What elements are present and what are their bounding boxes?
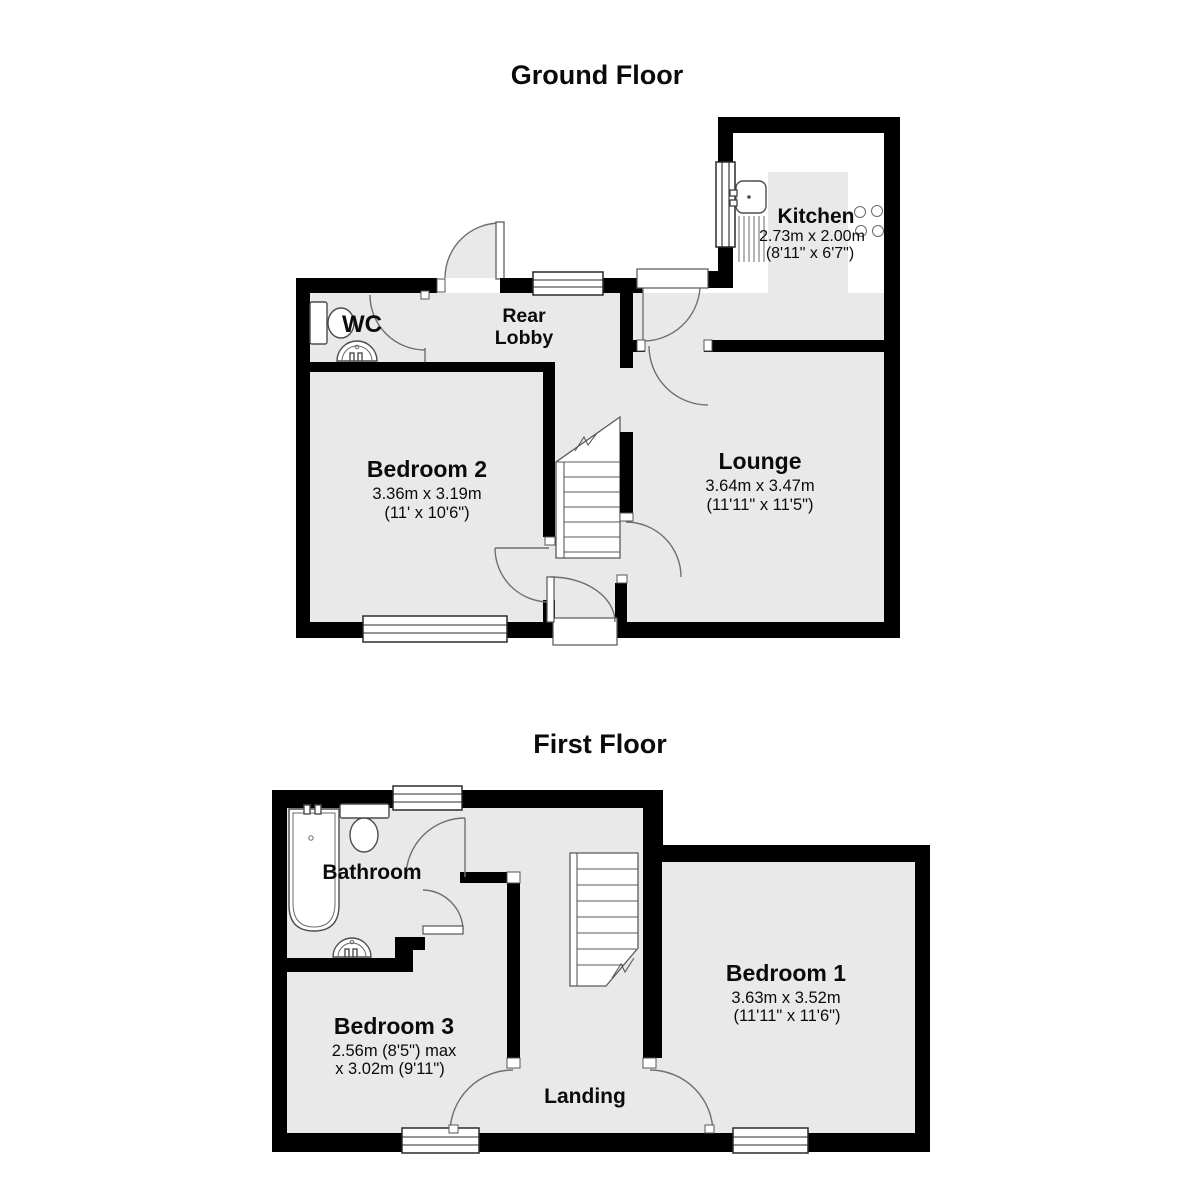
floorplan-svg: Ground Floor — [0, 0, 1200, 1200]
wall-top-b — [500, 278, 533, 293]
bedroom1-window — [733, 1128, 808, 1153]
wall-bathroom-bottom — [287, 958, 403, 972]
wall-stairs-lounge — [620, 432, 633, 513]
bedroom1-dim-metric: 3.63m x 3.52m — [731, 989, 840, 1007]
wall-ff-right — [915, 845, 930, 1152]
lobby-window — [533, 272, 603, 295]
ground-floor-title: Ground Floor — [511, 60, 684, 90]
bedroom1-name: Bedroom 1 — [726, 960, 846, 986]
wall-bottom-a — [296, 622, 363, 638]
jamb — [620, 513, 633, 521]
jamb — [705, 1125, 714, 1133]
back-door-swing-area — [445, 223, 500, 278]
kitchen-name: Kitchen — [777, 205, 854, 228]
bedroom1-dim-imperial: (11'11" x 11'6") — [734, 1007, 841, 1025]
kitchen-dim-metric: 2.73m x 2.00m — [759, 228, 865, 245]
wall-lobby-lounge — [620, 293, 633, 368]
jamb — [449, 1125, 458, 1133]
wall-corridor — [507, 883, 520, 1058]
wall-right — [884, 117, 900, 638]
wall-kitchen-top — [718, 117, 900, 133]
jamb — [507, 1058, 520, 1068]
front-door-leaf — [547, 577, 554, 622]
wall-kitchen-left-lower — [718, 246, 733, 273]
back-door-leaf — [496, 222, 504, 279]
bedroom3-door-leaf — [423, 926, 463, 934]
wall-corridor-stub — [460, 872, 507, 883]
bedroom2-dim-metric: 3.36m x 3.19m — [372, 485, 481, 503]
wall-ff-left — [272, 790, 287, 1152]
wall-bottom-b — [507, 622, 553, 638]
kitchen-doorway-threshold — [637, 269, 708, 288]
jamb — [421, 291, 429, 299]
jamb — [704, 340, 712, 351]
rear-lobby-line1: Rear — [502, 305, 546, 327]
bedroom3-dim-line1: 2.56m (8'5") max — [332, 1042, 457, 1060]
wall-hall-lounge — [615, 583, 627, 622]
jamb — [643, 1058, 656, 1068]
jamb — [507, 872, 520, 883]
first-floor-plan: First Floor — [272, 729, 930, 1153]
rear-lobby-line2: Lobby — [495, 327, 554, 349]
first-floor-title: First Floor — [533, 729, 667, 759]
bedroom2-name: Bedroom 2 — [367, 456, 487, 482]
wall-top-a — [296, 278, 437, 293]
wall-ff-bottom — [272, 1133, 930, 1152]
lounge-label: Lounge 3.64m x 3.47m (11'11" x 11'5") — [705, 448, 814, 514]
wall-bathroom-step — [395, 937, 413, 972]
lounge-dim-imperial: (11'11" x 11'5") — [707, 496, 814, 514]
lounge-name: Lounge — [718, 448, 801, 474]
wall-lounge-top — [704, 340, 884, 352]
wall-kitchen-left-upper — [718, 133, 733, 163]
jamb — [637, 340, 645, 351]
jamb — [617, 575, 627, 583]
wall-bedroom1-left — [643, 862, 662, 1058]
front-door-threshold — [553, 618, 617, 645]
wall-bedroom2-right — [543, 362, 555, 537]
wc-label: WC — [342, 311, 382, 338]
landing-label: Landing — [544, 1085, 626, 1108]
bedroom2-dim-imperial: (11' x 10'6") — [384, 504, 469, 522]
lounge-dim-metric: 3.64m x 3.47m — [705, 477, 814, 495]
bedroom2-window — [363, 616, 507, 642]
wall-ff-step — [643, 790, 663, 862]
bedroom2-label: Bedroom 2 3.36m x 3.19m (11' x 10'6") — [367, 456, 487, 522]
wall-bathroom-stub — [413, 937, 425, 950]
kitchen-dim-imperial: (8'11" x 6'7") — [766, 245, 854, 262]
bathroom-label: Bathroom — [322, 861, 421, 884]
bedroom3-dim-line2: x 3.02m (9'11") — [335, 1060, 445, 1078]
wall-bottom-c — [617, 622, 900, 638]
wall-ff-top — [272, 790, 663, 808]
floorplan-page: Ground Floor — [0, 0, 1200, 1200]
ground-floor-plan: Ground Floor — [296, 60, 900, 645]
bedroom3-label: Bedroom 3 2.56m (8'5") max x 3.02m (9'11… — [332, 1013, 457, 1078]
jamb — [437, 279, 445, 292]
bathroom-window — [393, 786, 462, 810]
bedroom3-name: Bedroom 3 — [334, 1013, 454, 1039]
bedroom3-window — [402, 1128, 479, 1153]
rear-lobby-label: Rear Lobby — [495, 305, 554, 349]
bedroom1-label: Bedroom 1 3.63m x 3.52m (11'11" x 11'6") — [726, 960, 846, 1025]
wall-left — [296, 278, 310, 638]
jamb — [545, 537, 555, 545]
wall-bedroom1-top — [663, 845, 930, 862]
wall-wc-bedroom2 — [296, 362, 555, 372]
